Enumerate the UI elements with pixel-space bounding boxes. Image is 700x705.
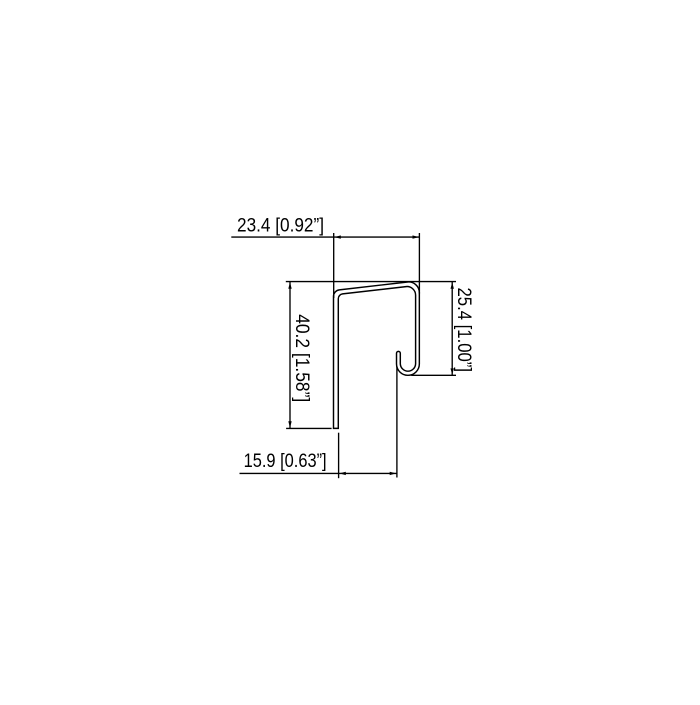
svg-text:40.2 [1.58”]: 40.2 [1.58”] [291,314,313,402]
svg-text:23.4 [0.92”]: 23.4 [0.92”] [237,214,324,236]
svg-text:15.9 [0.63”]: 15.9 [0.63”] [244,450,327,472]
svg-text:25.4 [1.00”]: 25.4 [1.00”] [453,288,475,373]
